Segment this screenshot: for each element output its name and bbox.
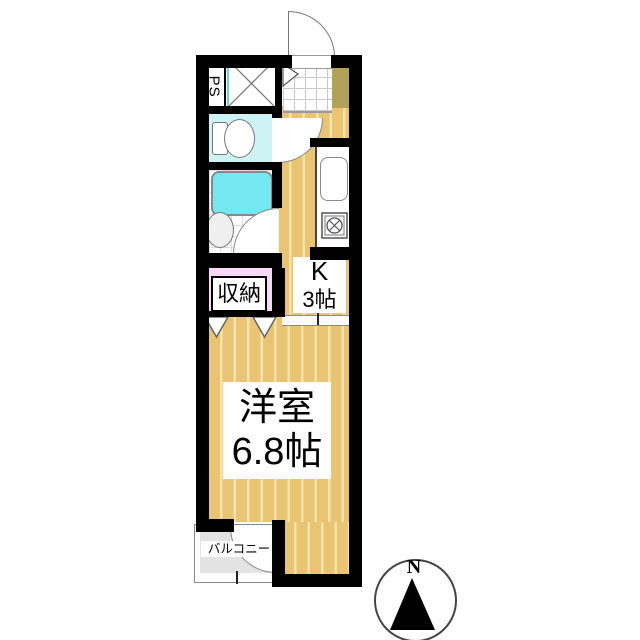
gas-stove-icon xyxy=(321,212,348,239)
wall-bath-closet xyxy=(196,253,282,268)
closet-label: 収納 xyxy=(211,276,267,312)
western-room-floor-lower xyxy=(283,522,349,574)
wall-counter-bottom xyxy=(310,247,349,260)
entrance-door-swing xyxy=(288,11,335,57)
floorplan: バルコニー PS K 3帖 収納 洋室 6.8帖 xyxy=(0,0,640,640)
wall-hall-seg1 xyxy=(272,106,282,118)
wall-hall-seg2 xyxy=(272,162,282,208)
bathtub-icon xyxy=(211,171,273,216)
shoe-cabinet xyxy=(332,66,349,108)
wall-closet-right xyxy=(272,268,285,317)
wall-balcony-side xyxy=(272,520,285,587)
compass-north-label: N xyxy=(401,556,427,579)
toilet-bowl-icon xyxy=(224,119,255,158)
kitchen-sink-icon xyxy=(320,157,348,201)
wall-entrance-divider xyxy=(275,55,282,106)
wall-bottom-left-step xyxy=(196,519,234,532)
kitchen-label: K 3帖 xyxy=(293,257,346,313)
wall-right xyxy=(349,55,362,587)
wall-counter-top xyxy=(310,138,349,147)
balcony-label: バルコニー xyxy=(201,541,277,557)
western-room-label: 洋室 6.8帖 xyxy=(223,382,331,479)
wall-left xyxy=(196,55,209,532)
balcony-rail-tick xyxy=(236,571,238,584)
entrance-step-line xyxy=(283,111,332,113)
kitchen-room-partition xyxy=(282,315,349,326)
wall-below-closet xyxy=(196,311,282,317)
partition-tick xyxy=(317,311,319,325)
wall-bottom xyxy=(272,574,362,587)
wall-toilet-bath xyxy=(196,162,282,170)
wall-above-toilet xyxy=(196,106,282,114)
north-arrow-icon xyxy=(390,578,436,632)
washbasin-icon xyxy=(206,212,234,248)
